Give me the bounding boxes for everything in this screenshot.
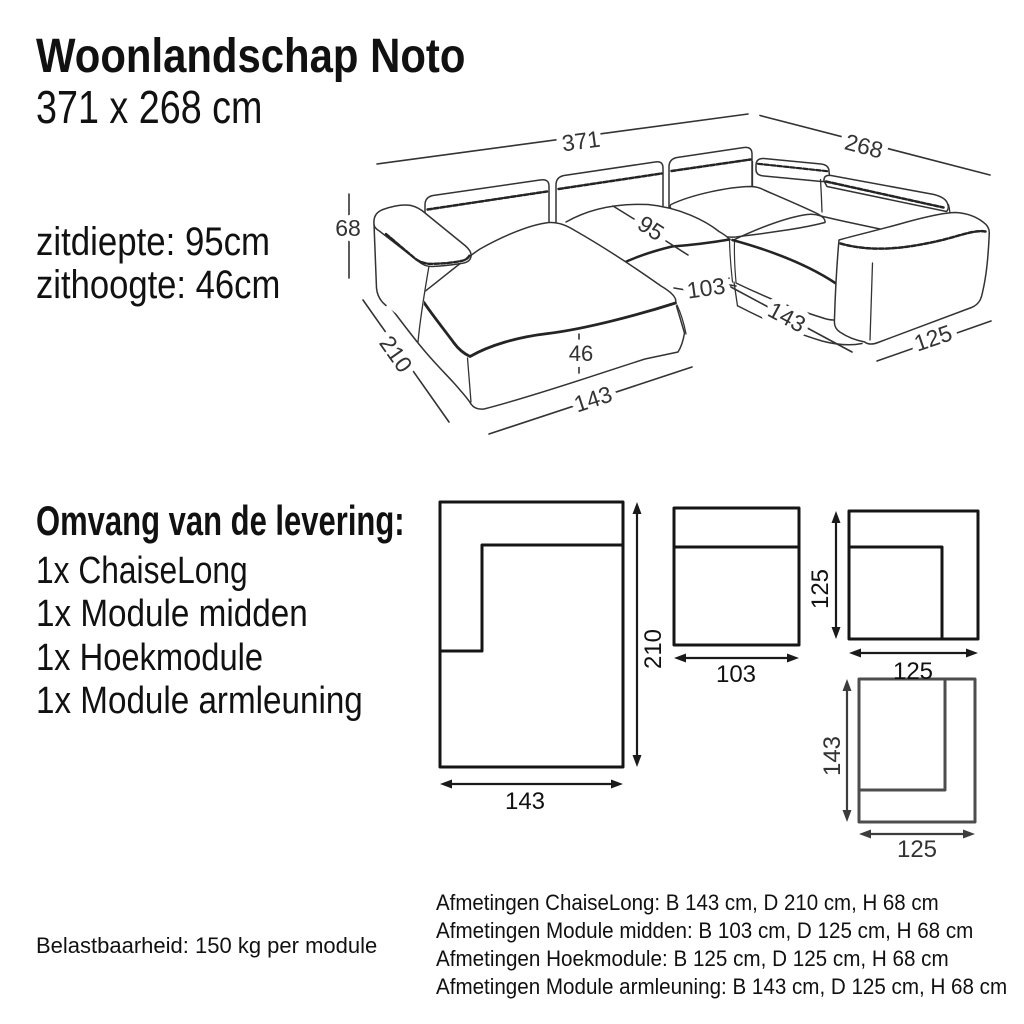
svg-text:68: 68	[335, 215, 361, 241]
svg-text:125: 125	[807, 569, 834, 609]
svg-text:210: 210	[640, 629, 667, 669]
svg-text:125: 125	[897, 836, 937, 863]
svg-text:103: 103	[685, 272, 727, 303]
svg-text:143: 143	[505, 788, 545, 815]
svg-text:103: 103	[716, 661, 756, 688]
svg-text:46: 46	[569, 341, 593, 366]
svg-text:125: 125	[893, 658, 933, 685]
svg-text:143: 143	[571, 381, 616, 418]
svg-text:143: 143	[819, 736, 846, 776]
svg-text:210: 210	[374, 331, 417, 377]
svg-text:268: 268	[842, 129, 886, 164]
svg-text:371: 371	[560, 126, 602, 157]
